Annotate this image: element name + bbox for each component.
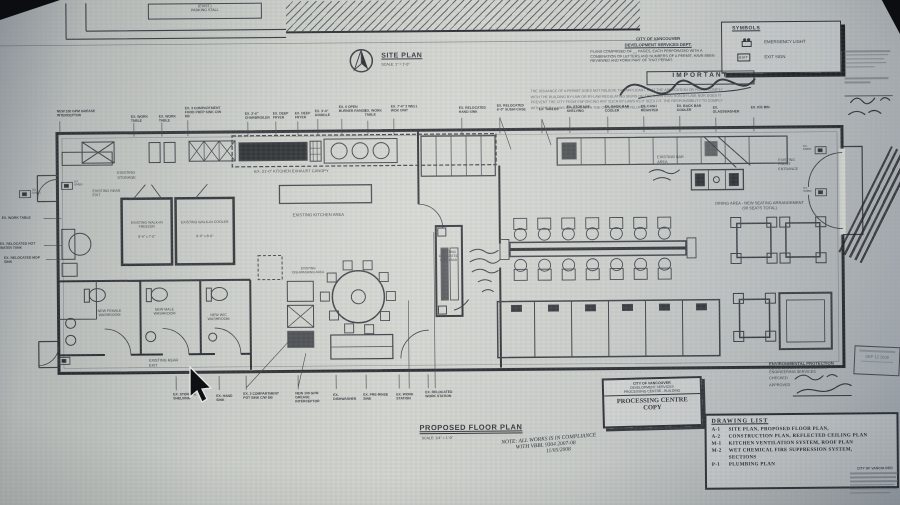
mouse-cursor xyxy=(0,0,900,505)
screen-photo-floor-plan: SITE PLAN SCALE: 1" = 1'-0" (EXIST.) PAR… xyxy=(0,0,900,505)
